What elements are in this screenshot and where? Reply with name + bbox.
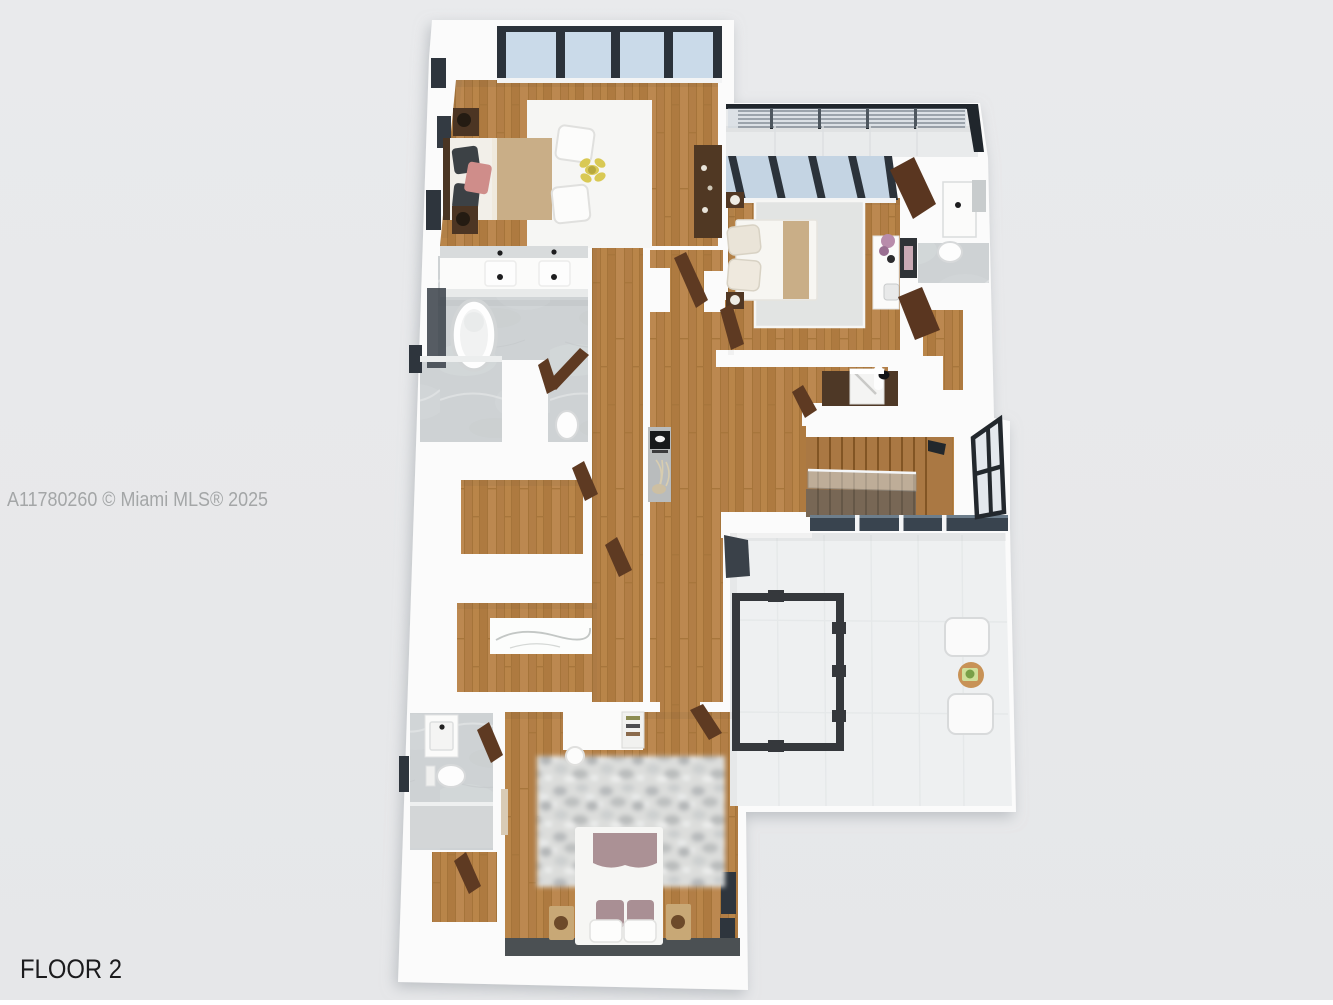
svg-text:FLOOR 2: FLOOR 2 [20, 954, 122, 984]
svg-text:A11780260 © Miami MLS® 2025: A11780260 © Miami MLS® 2025 [7, 489, 268, 511]
